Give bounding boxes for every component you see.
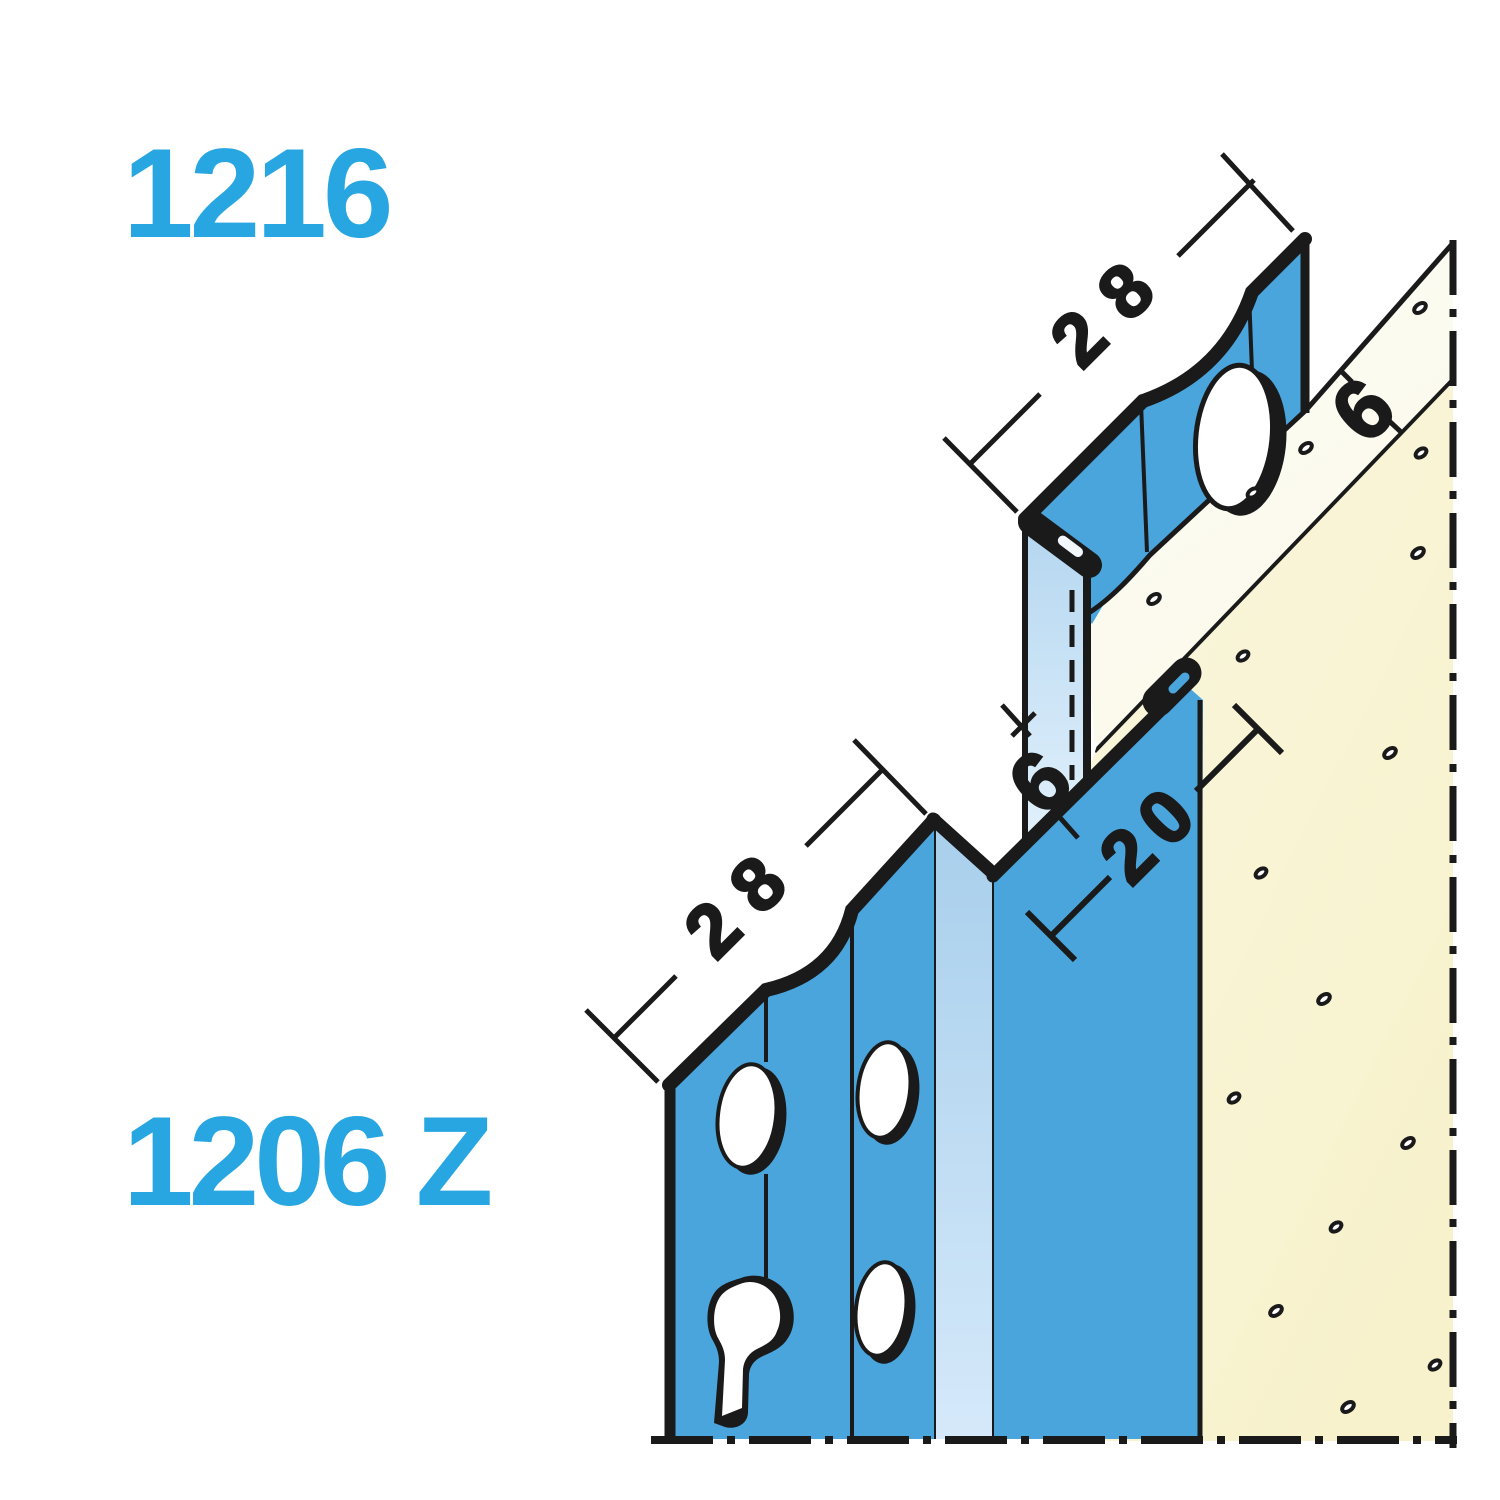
svg-text:1206 Z: 1206 Z [123, 1090, 490, 1232]
svg-text:1216: 1216 [123, 122, 390, 264]
